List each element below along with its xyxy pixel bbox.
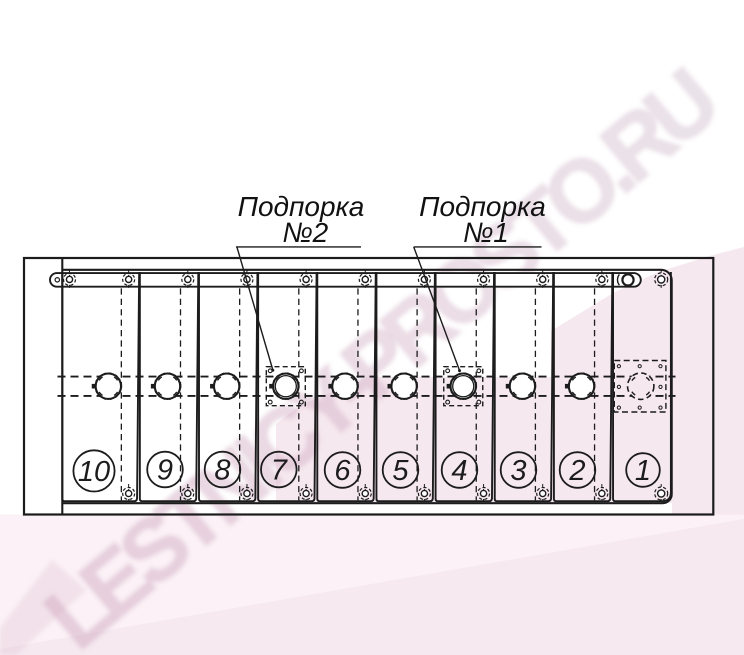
svg-text:4: 4 xyxy=(451,455,467,487)
svg-text:2: 2 xyxy=(568,455,585,487)
svg-text:10: 10 xyxy=(78,456,110,488)
svg-text:6: 6 xyxy=(334,455,351,487)
svg-text:1: 1 xyxy=(635,455,651,487)
svg-text:№2: №2 xyxy=(282,217,328,248)
svg-text:3: 3 xyxy=(510,455,526,487)
svg-text:8: 8 xyxy=(214,455,230,487)
svg-text:7: 7 xyxy=(271,455,289,487)
svg-text:5: 5 xyxy=(392,455,409,487)
svg-text:№1: №1 xyxy=(463,217,509,248)
svg-text:9: 9 xyxy=(157,455,173,487)
